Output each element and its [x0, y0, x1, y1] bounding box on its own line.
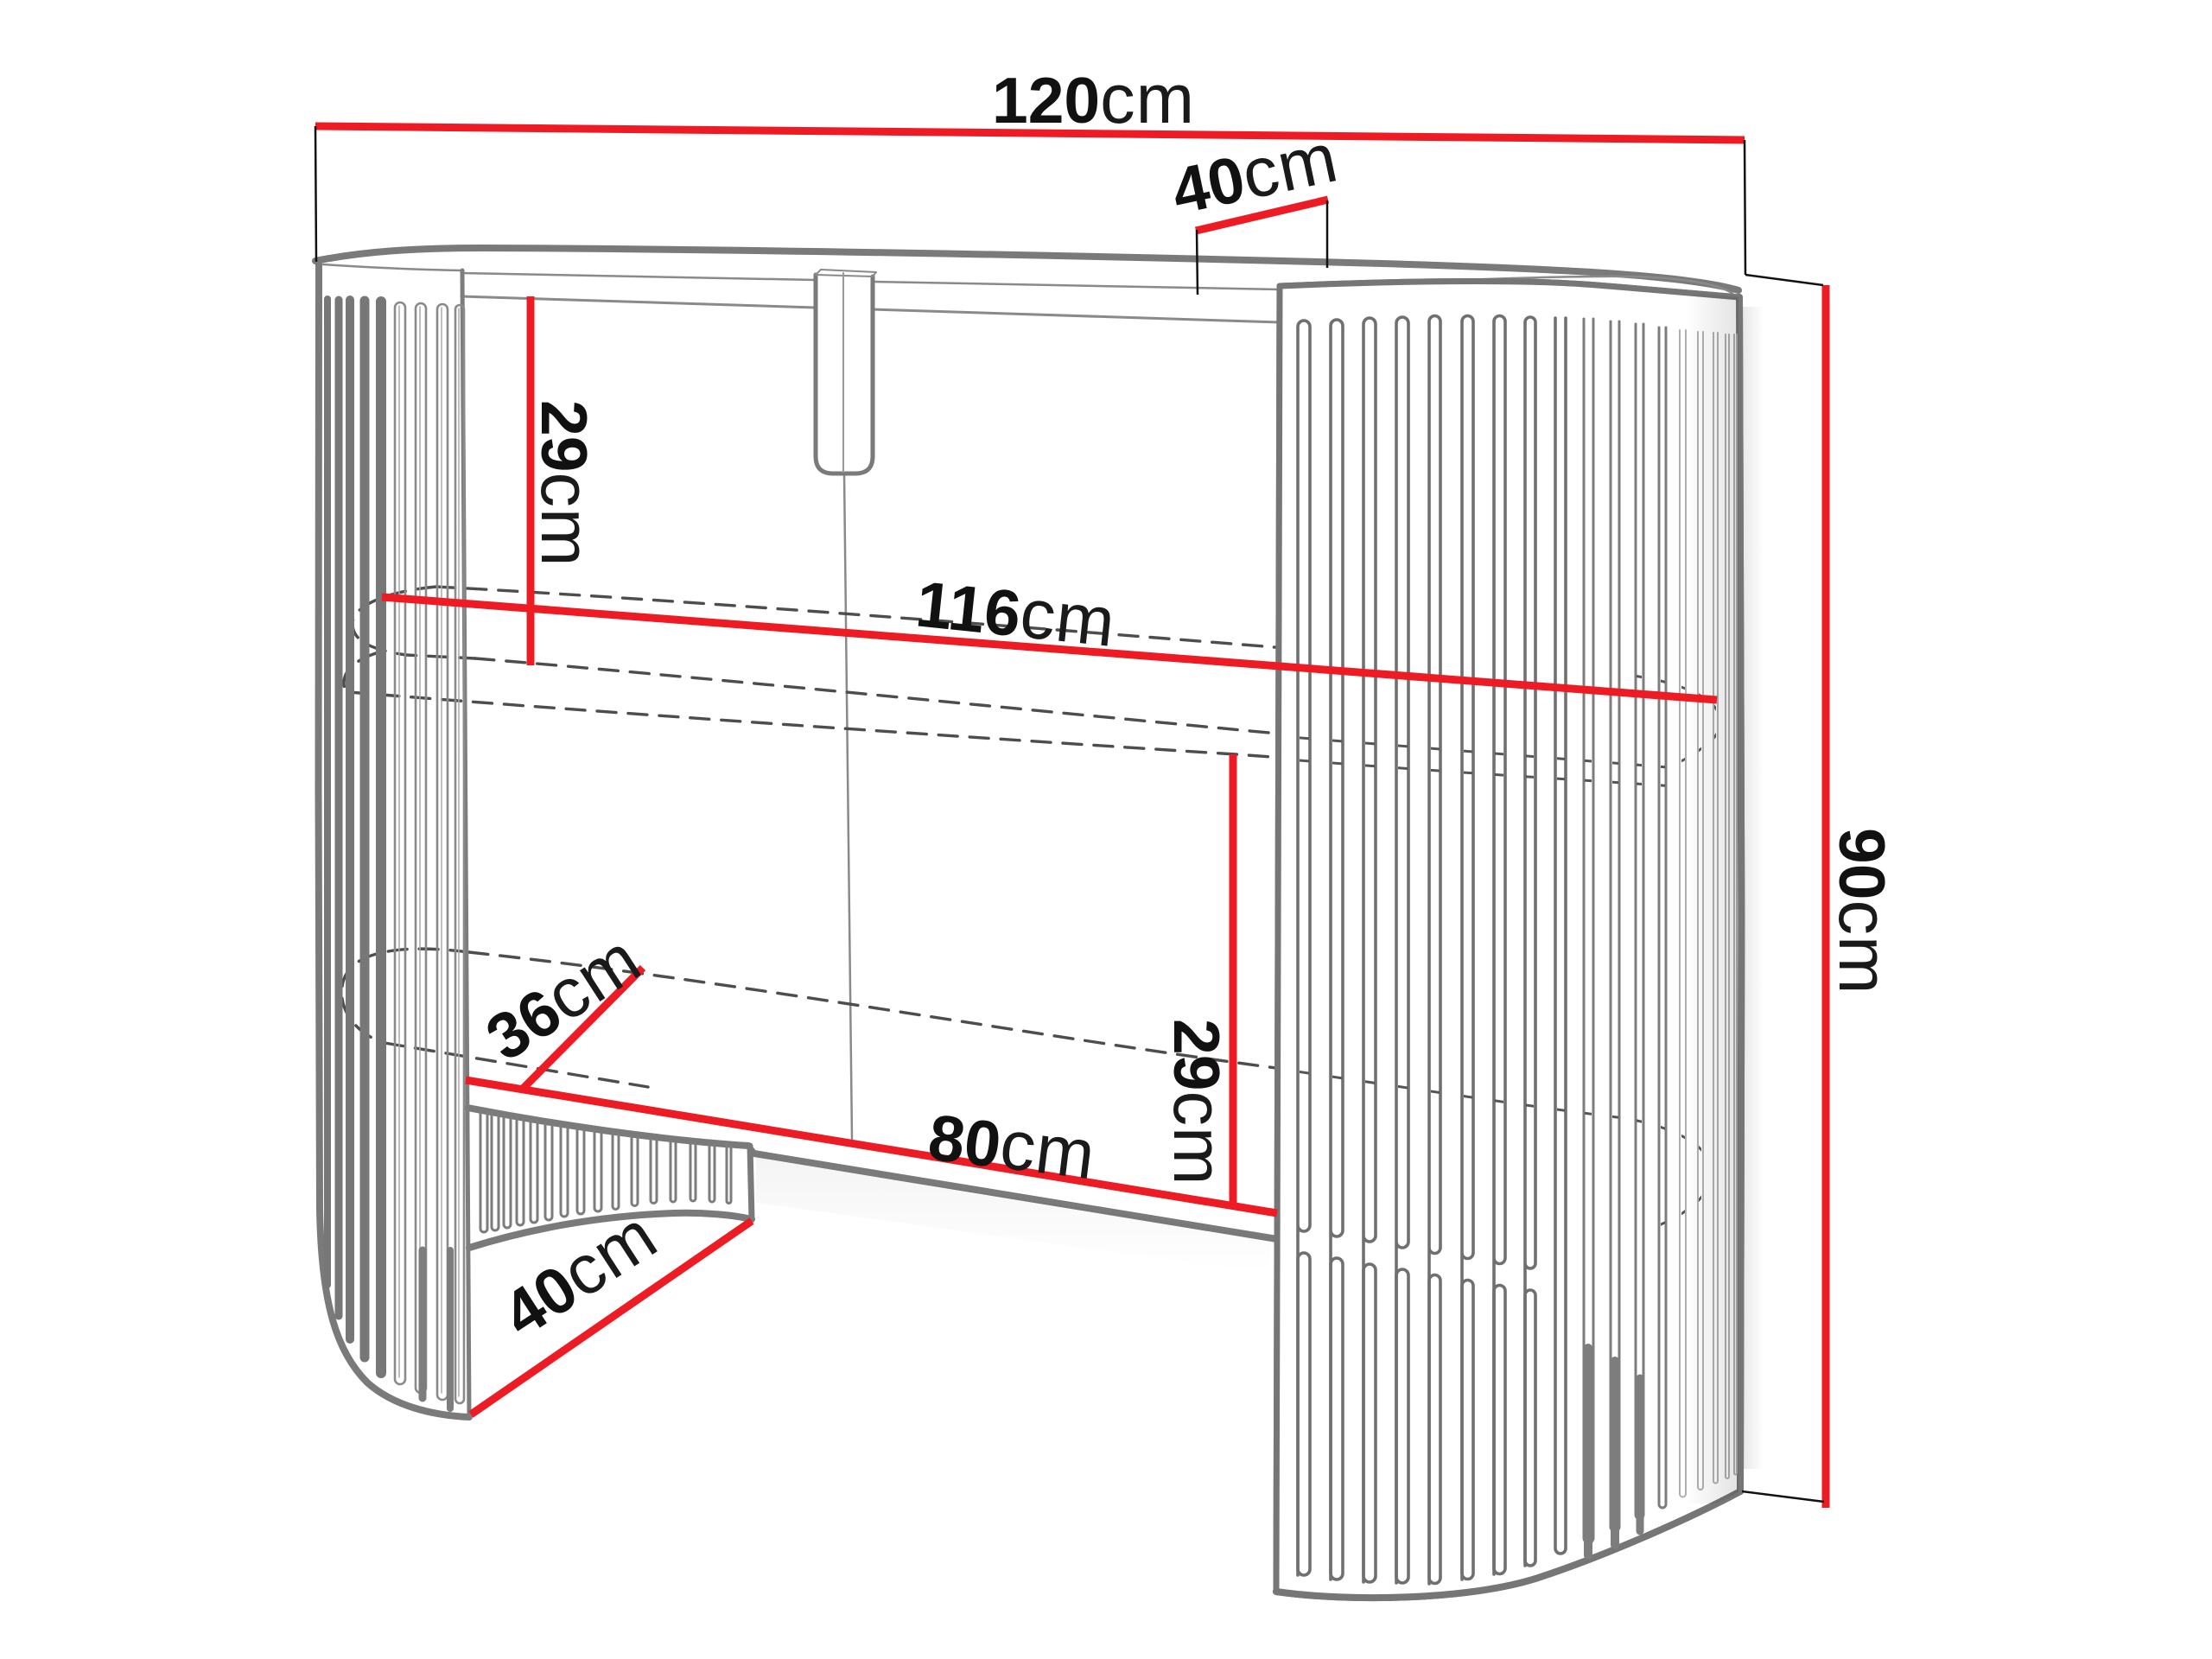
svg-text:90cm: 90cm: [1824, 828, 1902, 995]
svg-text:120cm: 120cm: [992, 60, 1195, 138]
svg-text:29cm: 29cm: [1159, 1019, 1236, 1185]
svg-text:29cm: 29cm: [526, 400, 604, 567]
